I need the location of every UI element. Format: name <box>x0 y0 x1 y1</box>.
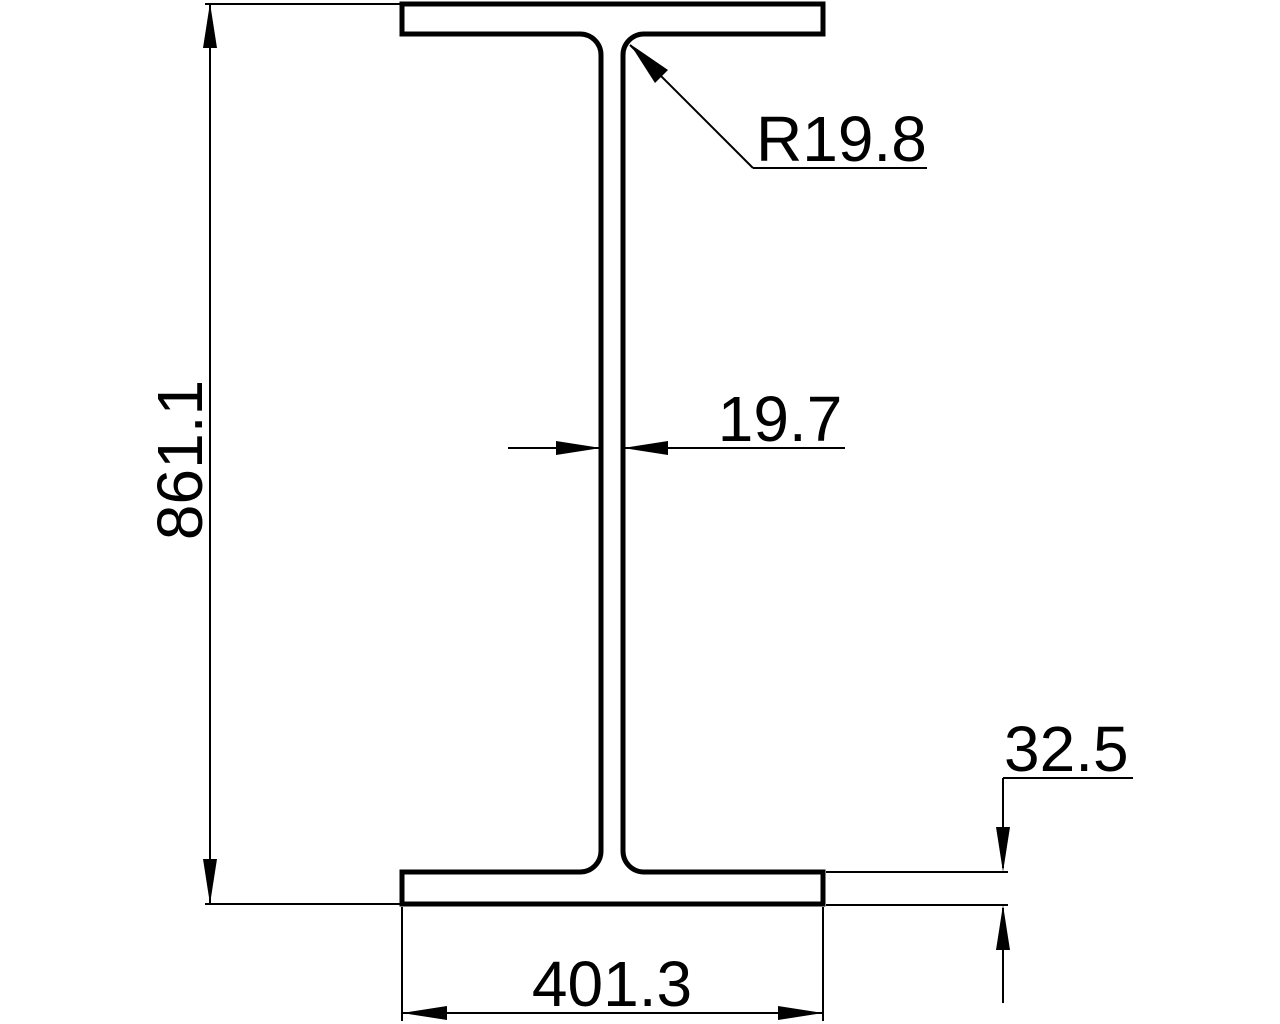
width-arrow-left-icon <box>402 1006 447 1020</box>
fillet-radius-leader: R19.8 <box>630 44 927 175</box>
thickness-arrow-down-icon <box>996 827 1010 872</box>
flange-thickness-label: 32.5 <box>1004 713 1129 785</box>
height-dimension: 861.1 <box>144 3 400 904</box>
web-thickness-label: 19.7 <box>718 383 843 455</box>
flange-width-label: 401.3 <box>532 948 692 1020</box>
flange-width-dimension: 401.3 <box>402 907 823 1021</box>
height-arrow-up-icon <box>203 3 217 48</box>
height-arrow-down-icon <box>203 859 217 904</box>
flange-thickness-dimension: 32.5 <box>826 713 1133 1003</box>
ibeam-cross-section-drawing: 861.1 19.7 R19.8 401.3 32.5 <box>0 0 1280 1024</box>
fillet-radius-label: R19.8 <box>756 103 927 175</box>
width-arrow-right-icon <box>778 1006 823 1020</box>
web-arrow-right-icon <box>556 441 601 455</box>
thickness-arrow-up-icon <box>996 905 1010 950</box>
height-dimension-label: 861.1 <box>144 380 216 540</box>
web-thickness-dimension: 19.7 <box>508 383 845 455</box>
web-arrow-left-icon <box>623 441 668 455</box>
